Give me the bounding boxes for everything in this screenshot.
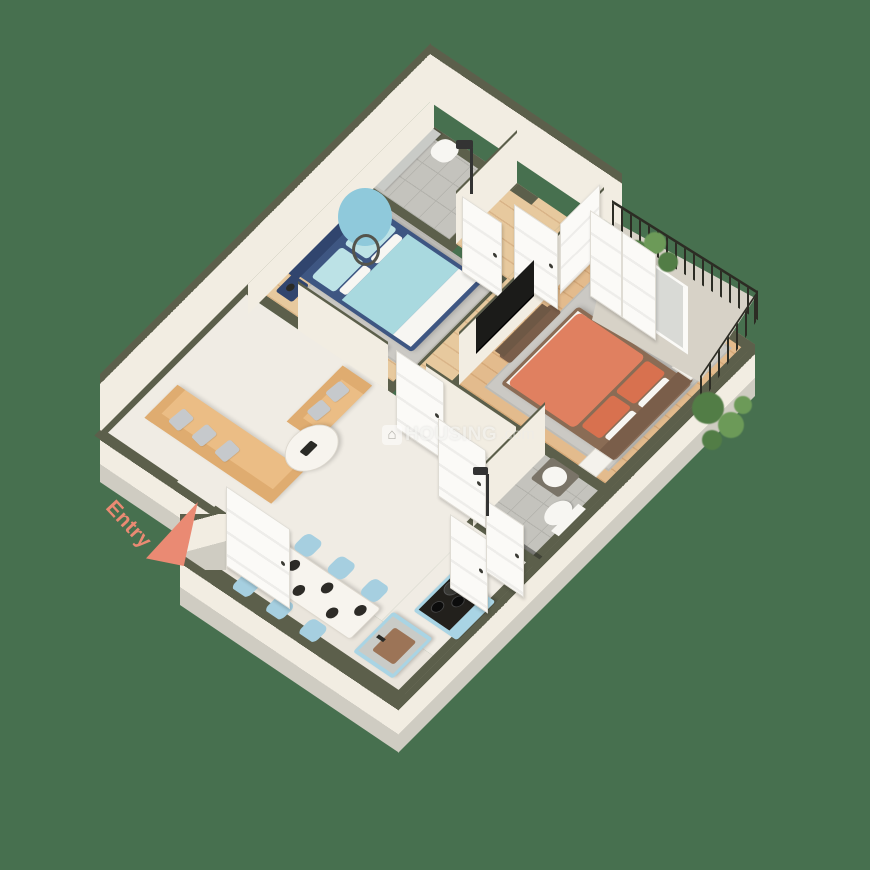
door-handle [477,480,481,487]
housing-watermark: ⌂ HOUSING .com [382,424,535,446]
shower-pole-bath2 [486,474,489,516]
floor-plan-render: Entry ⌂ HOUSING .com [0,0,870,870]
door-handle [515,553,519,560]
wardrobe-seam [621,232,623,317]
small-mirror-ring [352,234,380,266]
door-handle [281,560,285,567]
door-handle [549,263,553,270]
balcony-palm [734,396,752,414]
balcony-palm [702,430,722,450]
balcony-plant [658,252,678,272]
house-icon: ⌂ [382,425,402,445]
door-handle [479,568,483,575]
watermark-brand: HOUSING [405,424,497,446]
door-handle [493,252,497,259]
shower-pole-bath1 [470,148,473,194]
balcony-palm [718,412,744,438]
watermark-suffix: .com [500,426,535,444]
